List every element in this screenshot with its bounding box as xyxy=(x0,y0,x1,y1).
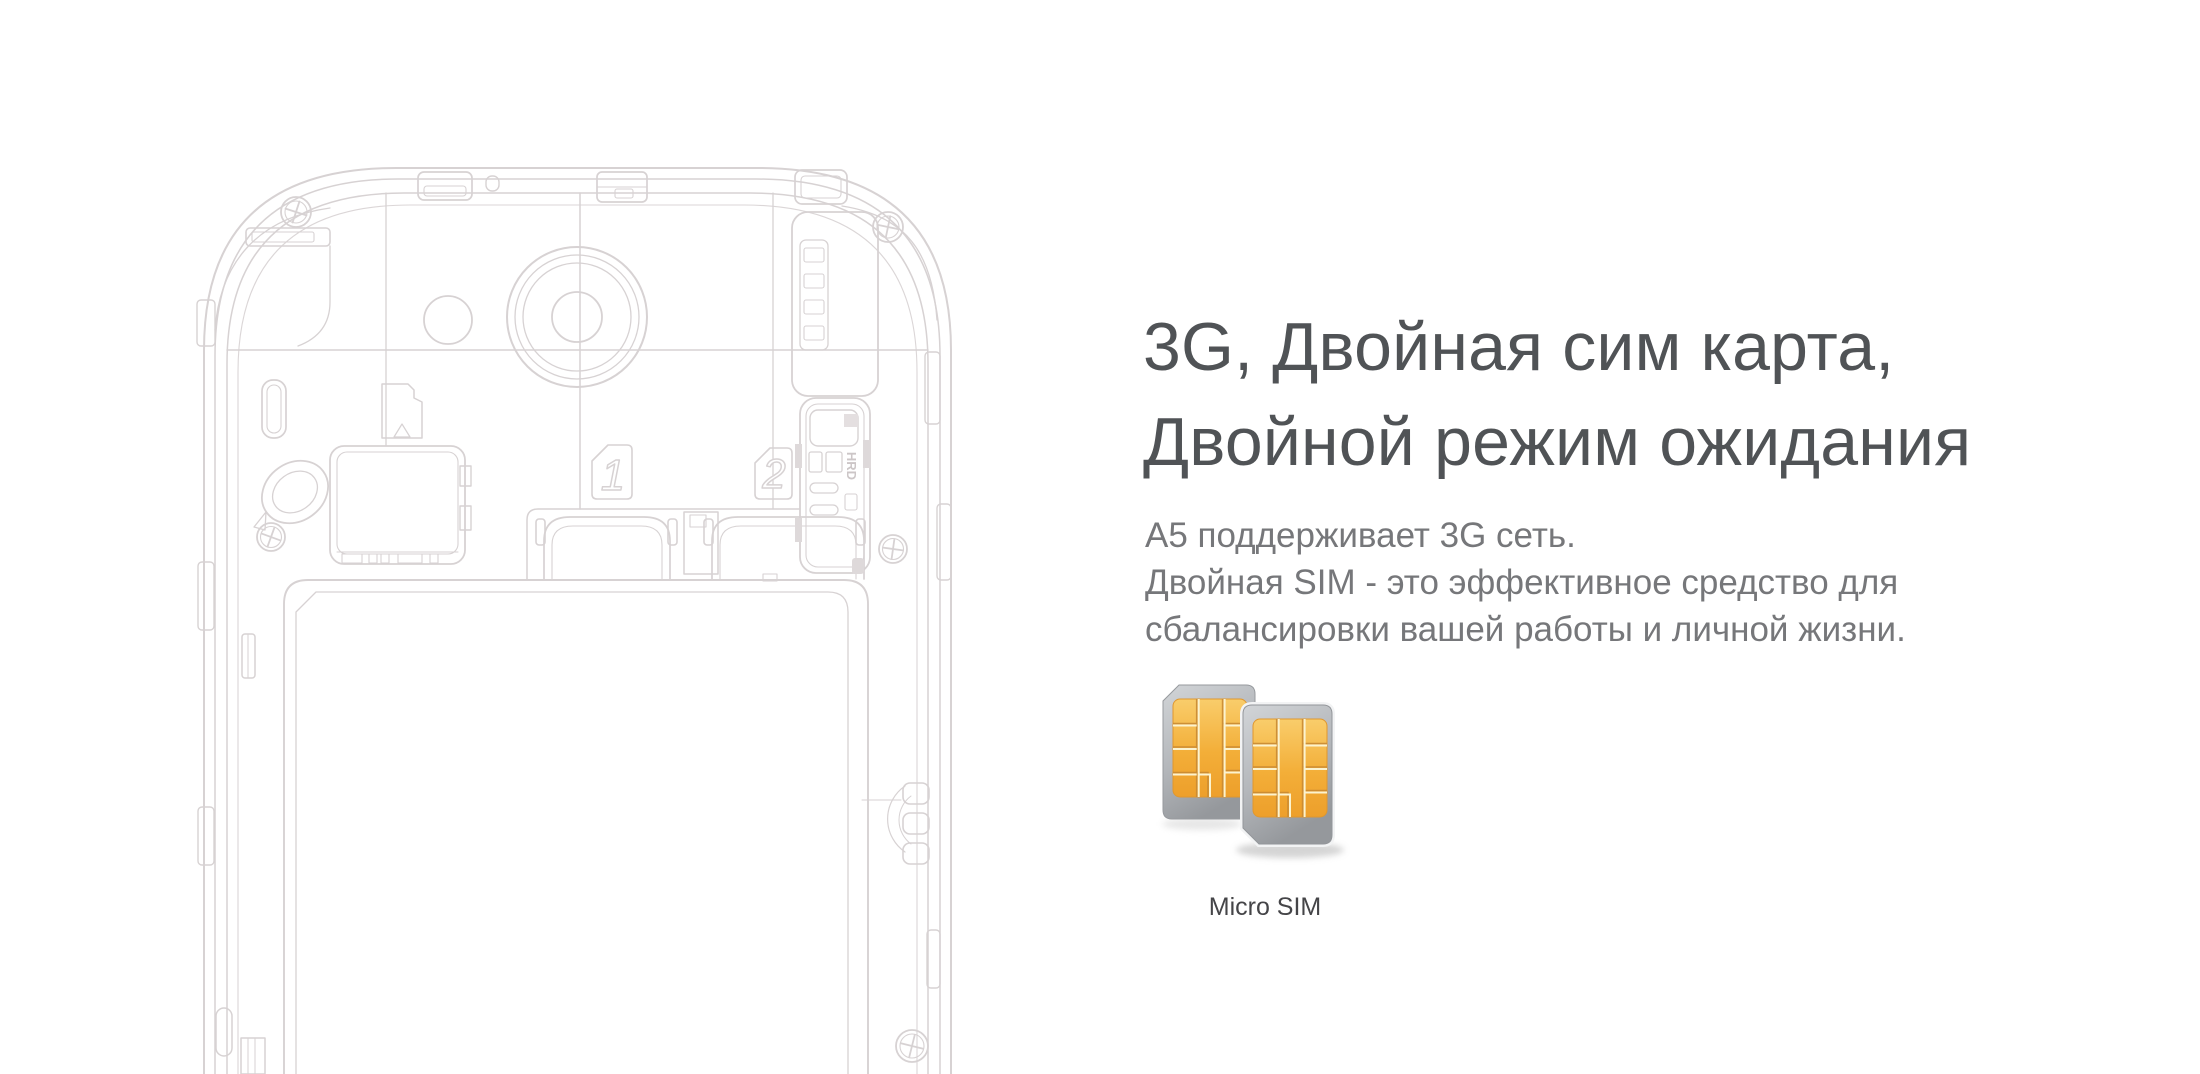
sim2-marker-icon: 2 xyxy=(755,448,792,499)
battery-connectors-icon xyxy=(536,512,865,579)
promo-section: 1 2 xyxy=(0,0,2200,1074)
sim1-marker-icon: 1 xyxy=(592,445,632,500)
lanyard-loop-icon xyxy=(250,448,341,536)
tray-hrd-label: HRD xyxy=(844,452,859,480)
microsd-icon xyxy=(382,384,422,438)
dual-sim-cards-icon xyxy=(1150,672,1370,882)
body-line-3: сбалансировки вашей работы и личной жизн… xyxy=(1145,606,1985,653)
heading-line-2: Двойной режим ожидания xyxy=(1143,395,2123,490)
battery-bay-icon xyxy=(284,574,868,1074)
top-clips-icon xyxy=(418,170,847,204)
microsd-slot-icon xyxy=(330,446,471,564)
sim-caption: Micro SIM xyxy=(1150,893,1380,922)
sim-tray-icon: HRD xyxy=(795,398,871,574)
feature-heading: 3G, Двойная сим карта, Двойной режим ожи… xyxy=(1143,300,2123,490)
sim1-label: 1 xyxy=(601,451,625,500)
sim2-label: 2 xyxy=(761,450,785,497)
side-slot-icon xyxy=(262,380,286,438)
top-left-bracket-icon xyxy=(246,228,330,346)
flash-icon xyxy=(424,296,472,344)
body-line-2: Двойная SIM - это эффективное средство д… xyxy=(1145,559,1985,606)
feature-description: A5 поддерживает 3G сеть. Двойная SIM - э… xyxy=(1145,512,1985,653)
sim-card-front-icon xyxy=(1243,705,1332,844)
camera-icon xyxy=(507,247,647,387)
heading-line-1: 3G, Двойная сим карта, xyxy=(1143,300,2123,395)
right-side-contacts-icon xyxy=(862,783,929,864)
phone-internals-drawing-icon: 1 2 xyxy=(0,0,1080,1074)
body-line-1: A5 поддерживает 3G сеть. xyxy=(1145,512,1985,559)
edge-details-icon xyxy=(197,300,951,1074)
